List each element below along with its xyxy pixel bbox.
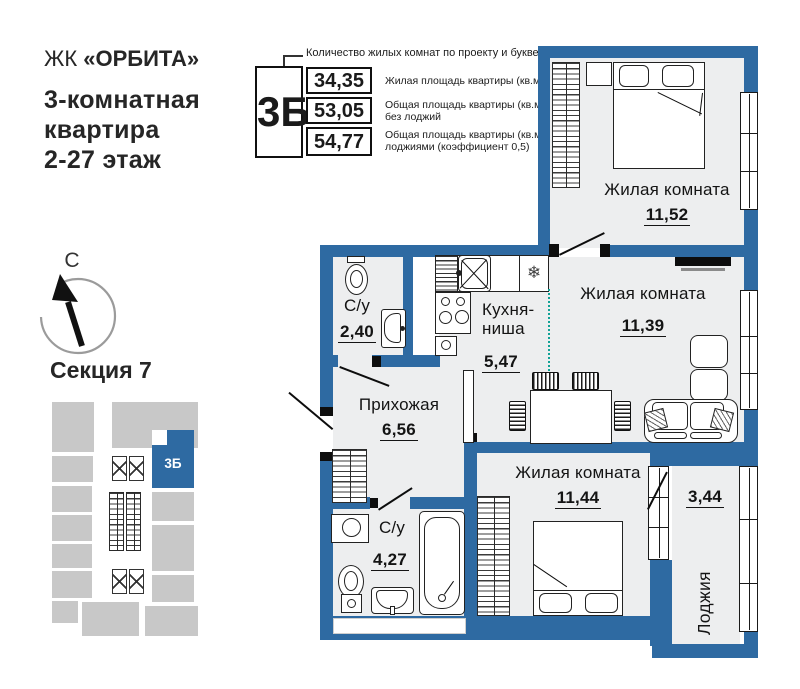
apartment-floors: 2-27 этаж [44, 146, 161, 175]
wall [372, 355, 440, 367]
total-area-loggia-value: 54,77 [306, 127, 372, 156]
room-label-bedroom-1152: Жилая комната [602, 180, 732, 199]
coat-rack-icon [332, 449, 367, 503]
floorplan-page: { "header": { "brand_prefix": "ЖК", "bra… [0, 0, 800, 689]
wall [403, 245, 413, 367]
elevator-icon [129, 569, 144, 594]
stairs-icon [109, 492, 124, 551]
room-label-bathroom-427: С/у [370, 518, 414, 537]
room-area-hall: 6,56 [344, 420, 454, 441]
wall [410, 497, 465, 509]
sofa-front-edge [690, 432, 722, 439]
section-unit-block [152, 492, 194, 521]
window-rail [740, 583, 757, 584]
wardrobe-icon [477, 496, 510, 616]
sofa-back-cushion [690, 335, 728, 368]
faucet-icon [400, 326, 405, 331]
section-highlight-label: 3Б [152, 456, 194, 471]
section-unit-block [52, 544, 92, 568]
chair-icon [509, 401, 526, 431]
room-label-kitchen: Кухня-ниша [482, 300, 554, 338]
section-diagram: 3Б [20, 398, 212, 644]
area-value: 5,47 [482, 352, 520, 373]
section-unit-block [82, 602, 139, 636]
wall [464, 442, 477, 618]
room-area-bathroom-240: 2,40 [336, 322, 378, 343]
stairs-icon [126, 492, 141, 551]
total-area-loggia-label: Общая площадь квартиры (кв.м) с лоджиями… [385, 129, 555, 154]
dining-table-icon [530, 390, 612, 444]
door-stop [372, 356, 381, 367]
washbasin-bowl [384, 313, 401, 343]
tv-stand-line [681, 268, 725, 271]
section-unit-block [52, 402, 94, 452]
room-area-bedroom-1152: 11,52 [602, 205, 732, 226]
room-area-bedroom-1144: 11,44 [512, 488, 644, 509]
unit-code-box: 3Б [255, 66, 303, 158]
toilet-bowl-inner [350, 270, 363, 288]
apartment-type-line2: квартира [44, 116, 160, 145]
sofa-back-cushion [690, 369, 728, 401]
compass-arrow-tail [68, 302, 82, 346]
burner-icon [456, 297, 465, 306]
room-area-loggia: 3,44 [682, 487, 728, 508]
complex-prefix: ЖК [44, 46, 77, 71]
section-unit-block [152, 575, 194, 602]
area-value: 11,39 [620, 316, 667, 337]
chair-icon [532, 372, 559, 390]
wall [610, 245, 758, 257]
wall [320, 245, 333, 407]
door-stop [600, 244, 610, 257]
wall [538, 46, 550, 245]
pillow-icon [619, 65, 649, 87]
callout-line-h [283, 55, 303, 57]
window-rail [741, 336, 757, 337]
toilet-tank-icon [347, 256, 365, 263]
room-label-loggia: Лоджия [694, 525, 720, 635]
vent-icon: ❄ [519, 255, 549, 292]
tv-icon [675, 257, 731, 266]
balcony-door-window [648, 466, 669, 560]
area-value: 3,44 [686, 487, 724, 508]
room-area-living-1139: 11,39 [578, 316, 708, 337]
elevator-icon [112, 569, 127, 594]
window-rail [741, 373, 757, 374]
room-label-living-1139: Жилая комната [578, 284, 708, 303]
total-area-value: 53,05 [306, 97, 372, 124]
elevator-icon [112, 456, 127, 481]
total-area-label: Общая площадь квартиры (кв.м) без лоджий [385, 99, 555, 124]
wall [744, 46, 758, 92]
wall [650, 442, 758, 466]
window [740, 92, 758, 210]
burner-icon [455, 310, 469, 324]
drain-icon [441, 340, 451, 350]
wall [320, 355, 338, 367]
pillow-icon [662, 65, 694, 87]
wall [652, 644, 758, 658]
door-stop [320, 407, 333, 416]
section-unit-block [52, 456, 93, 482]
wardrobe-icon [552, 62, 580, 188]
toilet-bowl-inner [344, 571, 358, 591]
bed-icon [533, 521, 623, 591]
bed-icon [613, 89, 705, 169]
door-stop [370, 498, 378, 508]
window-rail [741, 171, 757, 172]
faucet-icon [456, 270, 462, 276]
chair-icon [572, 372, 599, 390]
section-title: Секция 7 [50, 357, 152, 384]
section-highlight-notch [152, 430, 167, 445]
bathtub-drain [438, 594, 446, 602]
door-stop [549, 244, 559, 257]
area-value: 6,56 [380, 420, 418, 441]
section-unit-block [52, 571, 92, 598]
burner-icon [439, 311, 452, 324]
room-area-kitchen: 5,47 [482, 352, 542, 373]
window-rail [740, 519, 757, 520]
window [740, 290, 758, 410]
pillow-icon [539, 593, 572, 613]
complex-name: «ОРБИТА» [83, 46, 199, 71]
nightstand-icon [586, 62, 612, 86]
window-rail [741, 133, 757, 134]
room-label-hall: Прихожая [344, 395, 454, 414]
sofa-front-edge [654, 432, 687, 439]
section-unit-block [152, 525, 194, 571]
section-unit-block [52, 601, 78, 623]
burner-icon [441, 297, 450, 306]
section-unit-block [52, 515, 92, 541]
washbasin-pedestal [390, 606, 395, 615]
toilet-base-circle [347, 599, 356, 608]
chair-icon [614, 401, 631, 431]
room-label-bathroom-240: С/у [336, 296, 378, 315]
window-rail [649, 527, 668, 528]
area-value: 11,44 [555, 488, 602, 509]
wall [538, 46, 758, 58]
living-area-value: 34,35 [306, 67, 372, 94]
door-leaf [463, 370, 474, 443]
duct-strip [333, 618, 466, 634]
pillow-icon [585, 593, 618, 613]
area-value: 4,27 [371, 550, 409, 571]
complex-title: ЖК «ОРБИТА» [44, 46, 199, 72]
compass-icon [34, 252, 122, 358]
apartment-type-line1: 3-комнатная [44, 86, 200, 115]
loggia-glazing [739, 466, 758, 632]
room-label-bedroom-1144: Жилая комната [512, 463, 644, 482]
room-area-bathroom-427: 4,27 [368, 550, 412, 571]
dishrack-icon [435, 255, 458, 292]
section-unit-block [145, 606, 198, 636]
washing-machine-drum [342, 518, 361, 537]
area-value: 11,52 [644, 205, 691, 226]
section-unit-block [52, 486, 92, 512]
area-value: 2,40 [338, 322, 376, 343]
elevator-icon [129, 456, 144, 481]
